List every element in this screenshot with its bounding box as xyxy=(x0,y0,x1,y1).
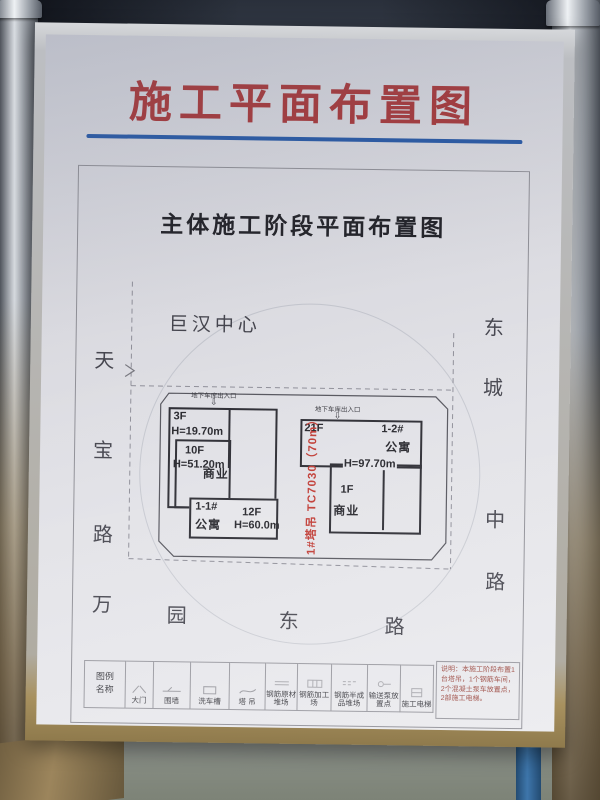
legend-item-pump: 输送泵放置点 xyxy=(367,664,401,712)
right-tower-height: H=97.70m xyxy=(343,458,397,471)
legend-item-label: 围墙 xyxy=(164,698,179,707)
tower-crane-label: 1#塔吊 TC7030（70m） xyxy=(303,413,321,555)
left-wing-name: 1-1# xyxy=(195,501,217,513)
road-bottom-char: 万 xyxy=(92,588,112,617)
rebar-semi-icon xyxy=(338,675,360,691)
road-right-char: 中 xyxy=(485,504,505,533)
legend-item-rebar-raw: 钢筋原材堆场 xyxy=(265,663,298,711)
road-bottom-char: 东 xyxy=(279,605,299,634)
left-commercial-label: 商业 xyxy=(203,465,229,482)
site-name-label: 巨汉中心 xyxy=(169,309,261,337)
pump-icon xyxy=(373,676,395,692)
plan-notes: 说明：本施工阶段布置1台塔吊，1个钢筋车间，2个混凝土泵车放置点，2部施工电梯。 xyxy=(435,661,520,720)
legend-item-label: 施工电梯 xyxy=(401,701,431,710)
sign-board: 施工平面布置图 主体施工阶段平面布置图 巨汉中心 天 宝 xyxy=(25,22,575,747)
right-podium-outline xyxy=(329,463,422,534)
left-tower-floors: 10F xyxy=(185,444,204,456)
legend-item-label: 钢筋原材堆场 xyxy=(265,690,296,708)
title-underline xyxy=(86,134,522,144)
right-podium-use: 商业 xyxy=(333,501,359,518)
rebar-raw-icon xyxy=(270,674,292,690)
legend-item-label: 钢筋半成品堆场 xyxy=(331,691,366,709)
legend-item-crane: 塔 吊 xyxy=(229,662,266,710)
left-podium-height: H=19.70m xyxy=(171,425,223,438)
left-wing-height: H=60.0m xyxy=(234,519,280,532)
right-tower-name: 1-2# xyxy=(381,423,403,435)
sign-paper: 施工平面布置图 主体施工阶段平面布置图 巨汉中心 天 宝 xyxy=(36,34,564,731)
blue-pole xyxy=(516,742,541,800)
road-left-char: 路 xyxy=(93,518,113,547)
left-wing-use: 公寓 xyxy=(195,516,221,533)
left-post-cap xyxy=(0,0,42,18)
legend-item-label: 洗车槽 xyxy=(198,698,221,707)
legend-table: 图例 名称 大门 围墙 洗车槽 xyxy=(83,660,434,713)
site-plan-linework xyxy=(72,166,529,662)
left-podium-floors: 3F xyxy=(173,410,186,422)
legend-item-label: 钢筋加工场 xyxy=(297,691,330,709)
road-right-char: 路 xyxy=(485,566,505,595)
right-podium-floors: 1F xyxy=(340,484,353,496)
legend-header-line2: 名称 xyxy=(96,683,114,697)
down-arrow-icon: ⇩ xyxy=(210,398,218,407)
legend-item-label: 大门 xyxy=(132,697,147,706)
legend-item-gate: 大门 xyxy=(125,661,154,709)
right-tower-use: 公寓 xyxy=(385,438,411,455)
legend-header: 图例 名称 xyxy=(83,660,126,709)
plan-panel: 主体施工阶段平面布置图 巨汉中心 天 宝 路 万 园 xyxy=(70,165,530,729)
road-bottom-char: 路 xyxy=(384,610,404,639)
legend-header-line1: 图例 xyxy=(96,670,114,684)
left-wing-floors: 12F xyxy=(242,506,261,518)
legend-item-rebar-semi: 钢筋半成品堆场 xyxy=(331,663,368,711)
legend-item-label: 输送泵放置点 xyxy=(367,692,399,710)
legend-item-wall: 围墙 xyxy=(153,661,191,710)
photo-scene: 施工平面布置图 主体施工阶段平面布置图 巨汉中心 天 宝 xyxy=(0,0,600,800)
legend-item-hoist: 施工电梯 xyxy=(400,664,434,712)
road-right-char: 东 xyxy=(484,312,504,341)
road-left-char: 宝 xyxy=(93,434,113,463)
road-right-char: 城 xyxy=(483,372,503,401)
rebar-processing-icon xyxy=(303,675,325,691)
legend-item-rebar-proc: 钢筋加工场 xyxy=(297,663,332,711)
legend-item-label: 塔 吊 xyxy=(238,699,255,708)
page-title: 施工平面布置图 xyxy=(45,66,564,135)
legend-item-wash: 洗车槽 xyxy=(190,662,230,711)
road-left-char: 天 xyxy=(94,344,114,373)
right-post-cap xyxy=(546,0,600,26)
road-bottom-char: 园 xyxy=(167,599,187,628)
